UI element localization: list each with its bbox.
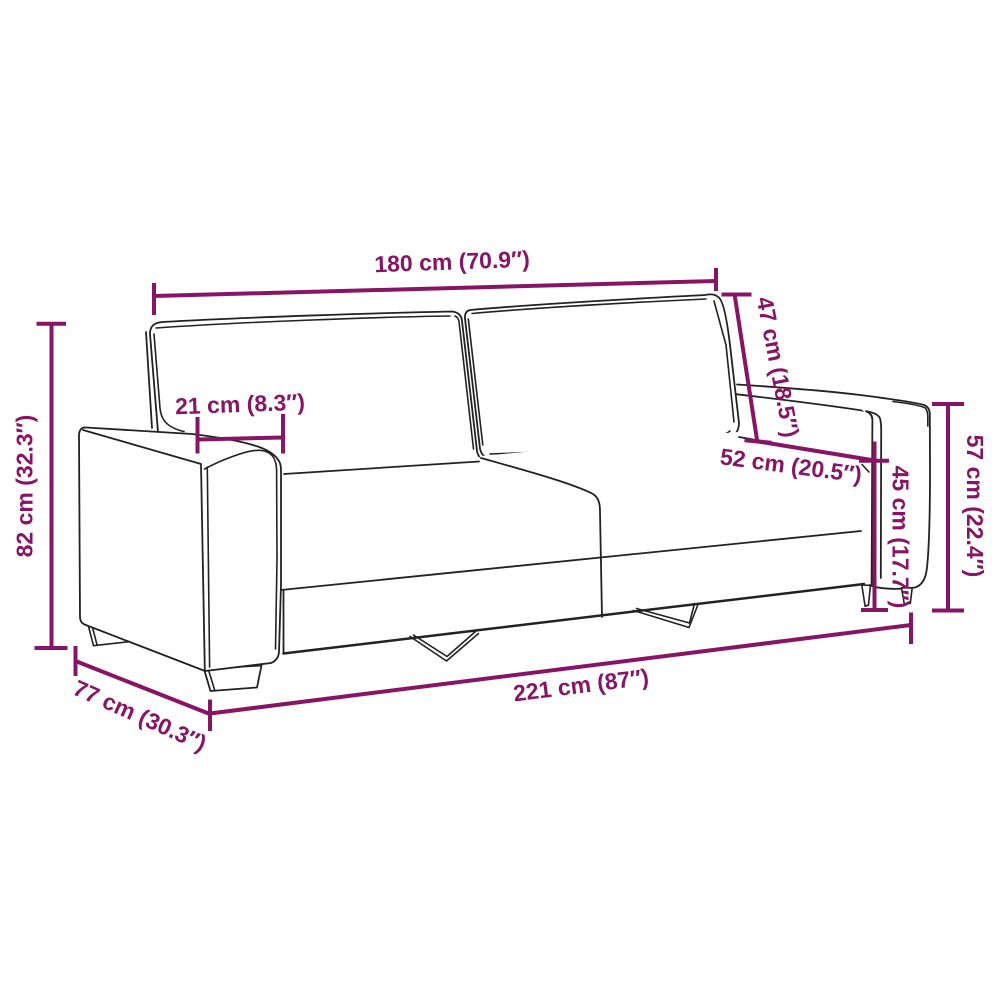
- svg-text:57 cm (22.4″): 57 cm (22.4″): [962, 435, 988, 578]
- svg-text:82 cm (32.3″): 82 cm (32.3″): [12, 415, 38, 558]
- svg-text:180 cm (70.9″): 180 cm (70.9″): [374, 246, 530, 277]
- svg-text:45 cm (17.7″): 45 cm (17.7″): [888, 466, 914, 609]
- svg-text:21 cm (8.3″): 21 cm (8.3″): [175, 389, 306, 420]
